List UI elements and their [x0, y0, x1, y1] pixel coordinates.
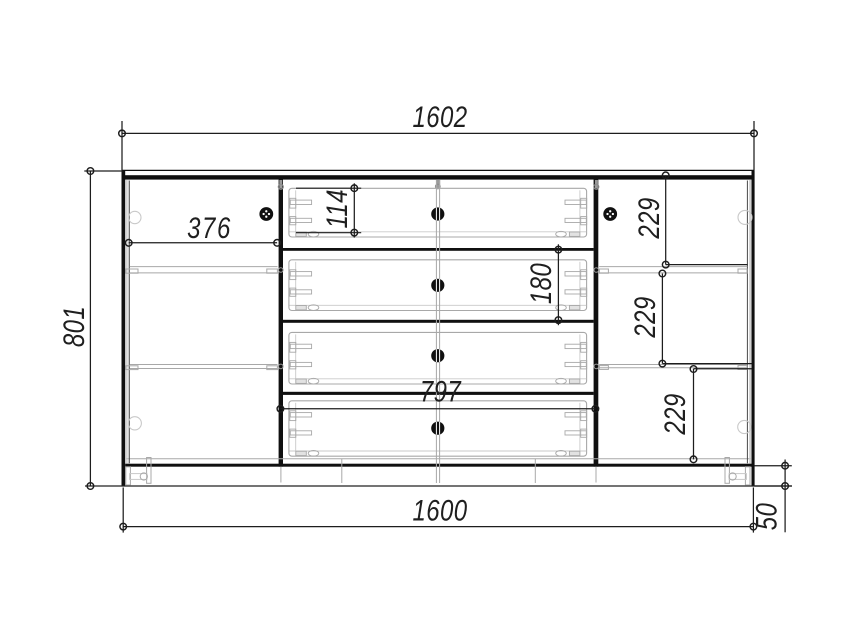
- svg-text:801: 801: [56, 306, 90, 347]
- svg-text:50: 50: [749, 503, 783, 530]
- svg-text:1600: 1600: [413, 493, 468, 527]
- svg-text:114: 114: [319, 189, 353, 228]
- svg-text:229: 229: [631, 197, 665, 239]
- svg-text:229: 229: [658, 393, 692, 435]
- svg-text:376: 376: [187, 210, 232, 244]
- svg-text:1602: 1602: [413, 99, 468, 133]
- svg-text:180: 180: [523, 263, 557, 304]
- svg-text:797: 797: [420, 374, 462, 408]
- svg-text:229: 229: [627, 296, 661, 338]
